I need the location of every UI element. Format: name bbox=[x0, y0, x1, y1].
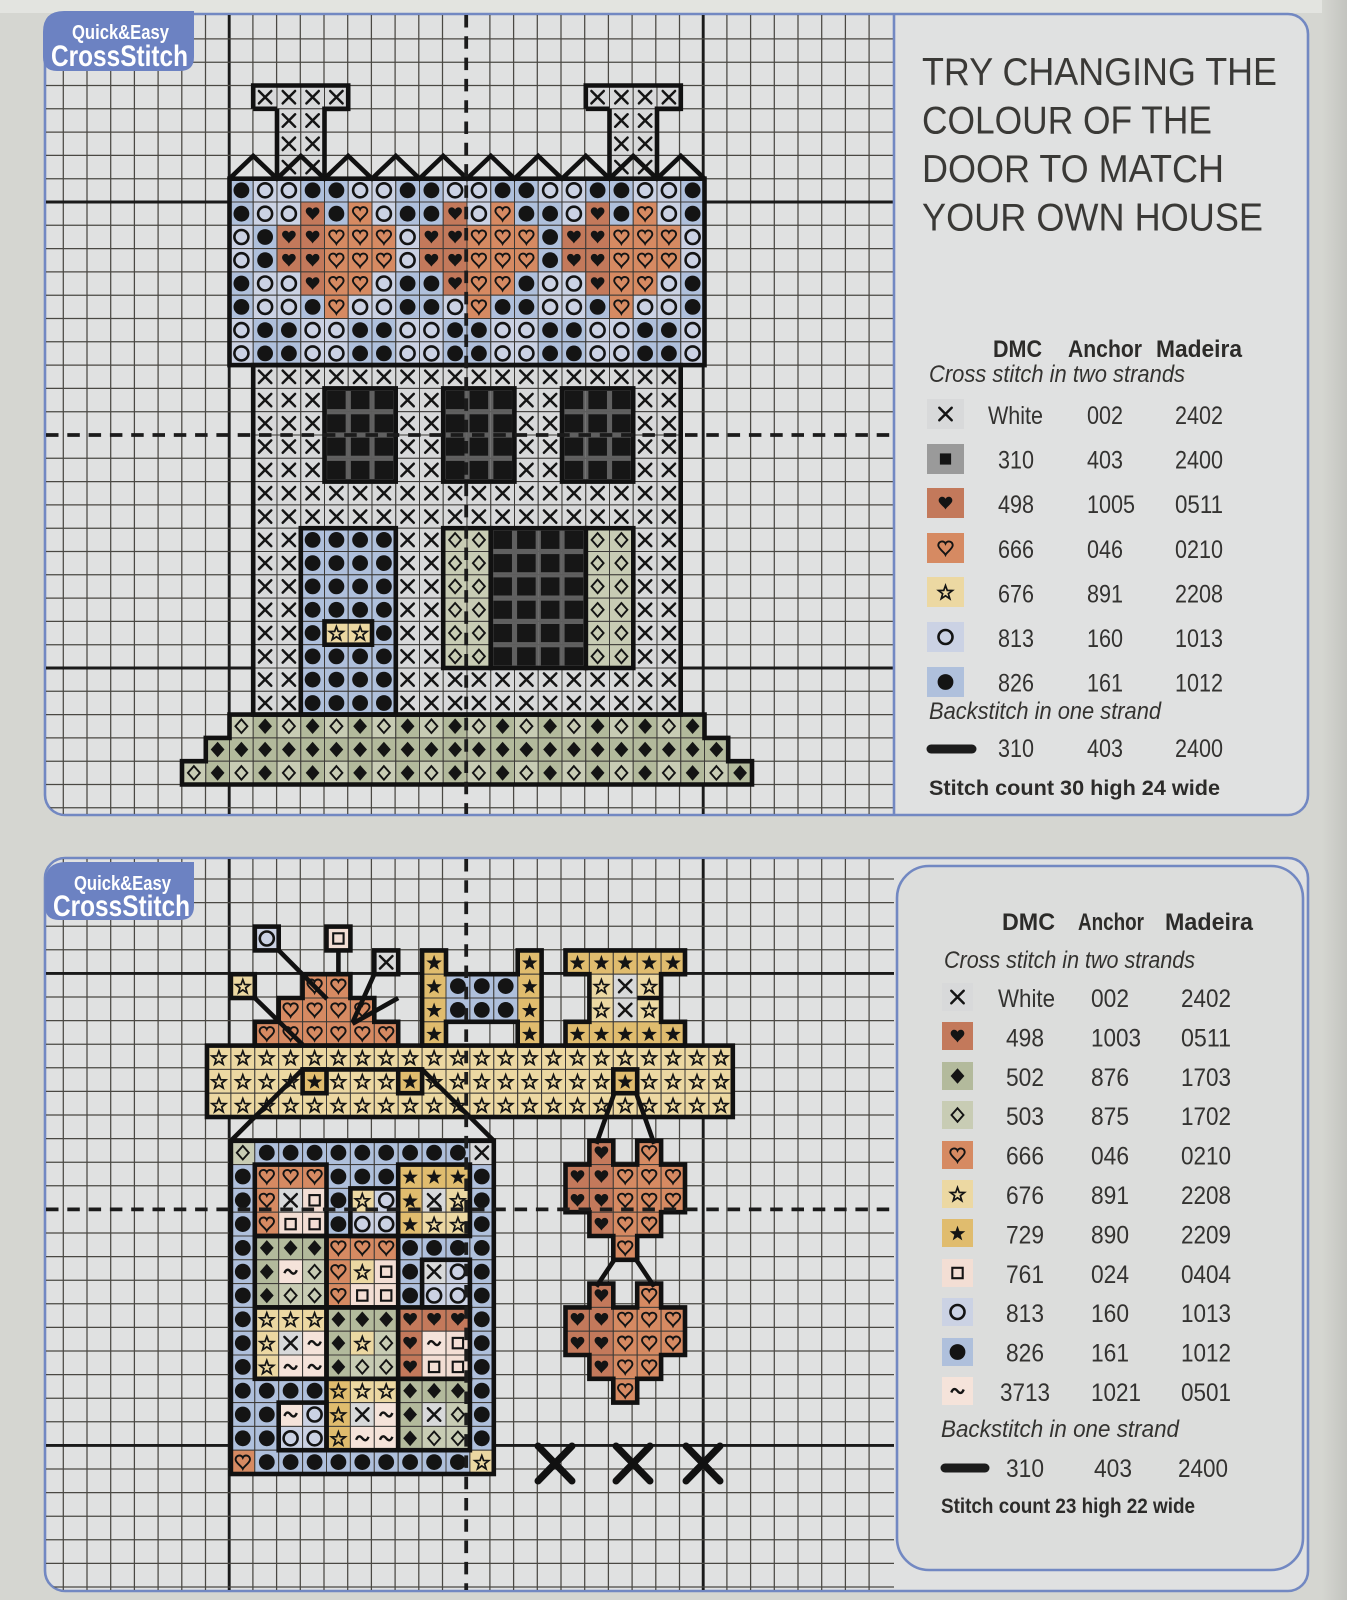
svg-text:761: 761 bbox=[1006, 1261, 1044, 1289]
svg-text:YOUR OWN HOUSE: YOUR OWN HOUSE bbox=[922, 197, 1263, 240]
svg-text:310: 310 bbox=[998, 735, 1034, 763]
svg-text:813: 813 bbox=[1006, 1300, 1044, 1328]
svg-text:002: 002 bbox=[1091, 985, 1129, 1013]
svg-text:875: 875 bbox=[1091, 1103, 1129, 1131]
svg-text:0404: 0404 bbox=[1181, 1261, 1231, 1289]
svg-text:1021: 1021 bbox=[1091, 1379, 1141, 1407]
svg-text:Stitch count 23 high 22 wide: Stitch count 23 high 22 wide bbox=[941, 1494, 1195, 1518]
svg-text:403: 403 bbox=[1094, 1455, 1132, 1483]
svg-text:0501: 0501 bbox=[1181, 1379, 1231, 1407]
svg-text:891: 891 bbox=[1091, 1182, 1129, 1210]
svg-text:White: White bbox=[988, 402, 1043, 430]
svg-text:502: 502 bbox=[1006, 1064, 1044, 1092]
svg-text:DOOR TO MATCH: DOOR TO MATCH bbox=[922, 148, 1224, 191]
svg-text:2400: 2400 bbox=[1175, 447, 1223, 475]
svg-text:2208: 2208 bbox=[1181, 1182, 1231, 1210]
svg-text:676: 676 bbox=[1006, 1182, 1044, 1210]
svg-text:2208: 2208 bbox=[1175, 580, 1223, 608]
svg-text:666: 666 bbox=[998, 536, 1034, 564]
svg-text:1005: 1005 bbox=[1087, 491, 1135, 519]
svg-text:002: 002 bbox=[1087, 402, 1123, 430]
svg-text:1013: 1013 bbox=[1181, 1300, 1231, 1328]
svg-text:813: 813 bbox=[998, 625, 1034, 653]
svg-text:666: 666 bbox=[1006, 1143, 1044, 1171]
svg-text:2402: 2402 bbox=[1181, 985, 1231, 1013]
svg-text:161: 161 bbox=[1087, 670, 1123, 698]
svg-text:310: 310 bbox=[998, 447, 1034, 475]
svg-text:046: 046 bbox=[1087, 536, 1123, 564]
svg-text:Anchor: Anchor bbox=[1068, 336, 1142, 363]
svg-text:729: 729 bbox=[1006, 1221, 1044, 1249]
svg-text:826: 826 bbox=[998, 670, 1034, 698]
svg-text:0511: 0511 bbox=[1175, 491, 1223, 519]
svg-text:2402: 2402 bbox=[1175, 402, 1223, 430]
svg-text:876: 876 bbox=[1091, 1064, 1129, 1092]
svg-text:1012: 1012 bbox=[1175, 670, 1223, 698]
svg-text:0511: 0511 bbox=[1181, 1024, 1231, 1052]
svg-text:0210: 0210 bbox=[1181, 1143, 1231, 1171]
svg-text:Cross stitch in two strands: Cross stitch in two strands bbox=[944, 947, 1195, 974]
svg-text:1703: 1703 bbox=[1181, 1064, 1231, 1092]
svg-text:1702: 1702 bbox=[1181, 1103, 1231, 1131]
svg-text:CrossStitch: CrossStitch bbox=[53, 890, 190, 923]
svg-text:3713: 3713 bbox=[1000, 1379, 1050, 1407]
svg-text:DMC: DMC bbox=[993, 336, 1042, 363]
svg-text:2209: 2209 bbox=[1181, 1221, 1231, 1249]
svg-text:403: 403 bbox=[1087, 447, 1123, 475]
svg-text:1012: 1012 bbox=[1181, 1340, 1231, 1368]
svg-text:1013: 1013 bbox=[1175, 625, 1223, 653]
svg-text:498: 498 bbox=[1006, 1024, 1044, 1052]
svg-text:046: 046 bbox=[1091, 1143, 1129, 1171]
svg-text:2400: 2400 bbox=[1175, 735, 1223, 763]
svg-text:891: 891 bbox=[1087, 580, 1123, 608]
svg-text:White: White bbox=[998, 985, 1055, 1013]
svg-text:403: 403 bbox=[1087, 735, 1123, 763]
svg-text:890: 890 bbox=[1091, 1221, 1129, 1249]
svg-text:DMC: DMC bbox=[1002, 909, 1055, 936]
svg-text:1003: 1003 bbox=[1091, 1024, 1141, 1052]
svg-text:161: 161 bbox=[1091, 1340, 1129, 1368]
svg-text:Anchor: Anchor bbox=[1078, 909, 1144, 936]
svg-text:Cross stitch in two strands: Cross stitch in two strands bbox=[929, 361, 1185, 388]
svg-text:CrossStitch: CrossStitch bbox=[51, 40, 188, 73]
svg-text:160: 160 bbox=[1091, 1300, 1129, 1328]
svg-text:2400: 2400 bbox=[1178, 1455, 1228, 1483]
svg-text:024: 024 bbox=[1091, 1261, 1129, 1289]
svg-text:Backstitch in one strand: Backstitch in one strand bbox=[929, 698, 1162, 725]
svg-text:COLOUR OF THE: COLOUR OF THE bbox=[922, 100, 1212, 143]
svg-text:Backstitch in one strand: Backstitch in one strand bbox=[941, 1416, 1180, 1443]
svg-text:498: 498 bbox=[998, 491, 1034, 519]
svg-text:160: 160 bbox=[1087, 625, 1123, 653]
svg-text:503: 503 bbox=[1006, 1103, 1044, 1131]
svg-text:310: 310 bbox=[1006, 1455, 1044, 1483]
svg-text:Stitch count 30 high 24 wide: Stitch count 30 high 24 wide bbox=[929, 776, 1220, 800]
svg-text:Madeira: Madeira bbox=[1156, 336, 1242, 363]
svg-text:TRY CHANGING THE: TRY CHANGING THE bbox=[922, 51, 1277, 94]
svg-text:Madeira: Madeira bbox=[1165, 909, 1253, 936]
svg-text:826: 826 bbox=[1006, 1340, 1044, 1368]
svg-text:676: 676 bbox=[998, 580, 1034, 608]
svg-text:0210: 0210 bbox=[1175, 536, 1223, 564]
